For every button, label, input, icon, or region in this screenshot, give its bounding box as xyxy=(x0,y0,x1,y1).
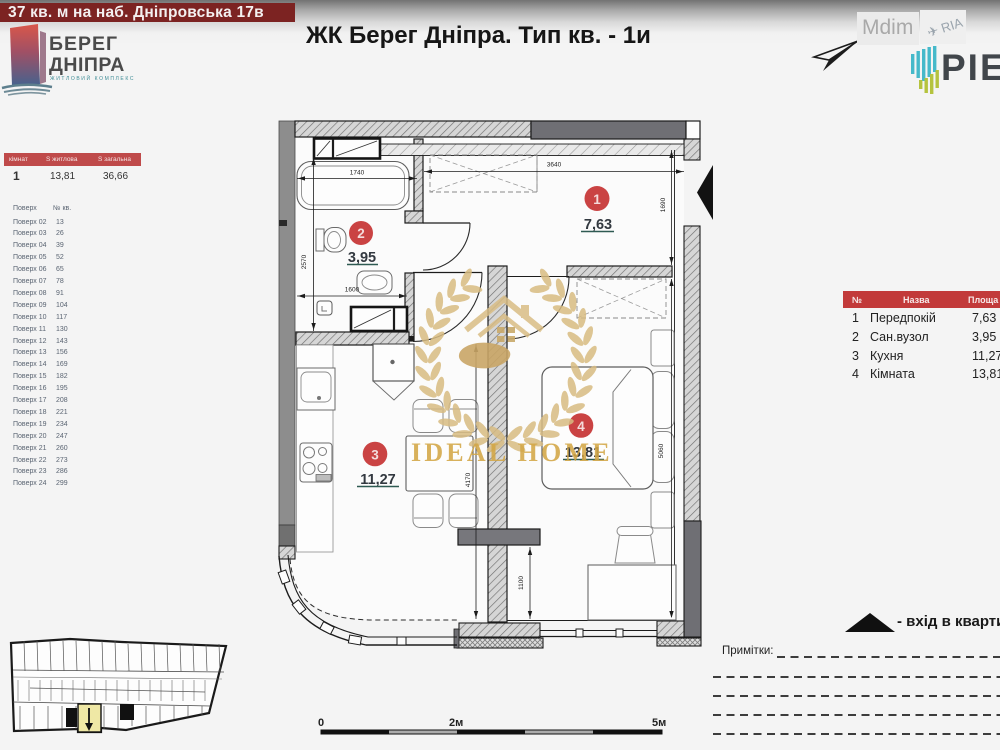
svg-text:5м: 5м xyxy=(652,717,666,729)
svg-text:1690: 1690 xyxy=(660,197,667,212)
svg-text:5060: 5060 xyxy=(658,443,665,458)
svg-text:1: 1 xyxy=(593,192,601,207)
svg-text:3,95: 3,95 xyxy=(348,250,376,266)
svg-text:11,27: 11,27 xyxy=(360,472,396,488)
svg-text:7,63: 7,63 xyxy=(584,217,612,233)
svg-text:0: 0 xyxy=(318,717,324,729)
svg-text:2570: 2570 xyxy=(301,254,308,269)
svg-text:3640: 3640 xyxy=(547,162,562,169)
svg-text:2м: 2м xyxy=(449,717,463,729)
svg-text:1600: 1600 xyxy=(345,287,360,294)
svg-text:1740: 1740 xyxy=(350,170,365,177)
svg-text:4170: 4170 xyxy=(465,472,472,487)
svg-text:2: 2 xyxy=(357,226,365,241)
svg-text:1100: 1100 xyxy=(518,576,525,590)
svg-text:4: 4 xyxy=(577,419,585,434)
svg-text:3: 3 xyxy=(371,448,379,463)
